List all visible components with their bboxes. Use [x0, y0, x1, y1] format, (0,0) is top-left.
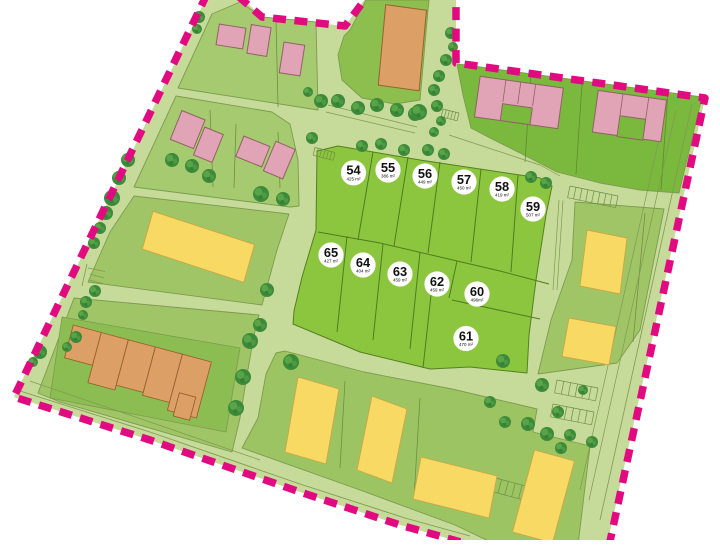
svg-text:450 m²: 450 m² — [457, 186, 472, 191]
svg-text:427 m²: 427 m² — [324, 259, 339, 264]
svg-text:60: 60 — [470, 284, 484, 299]
svg-text:57: 57 — [457, 172, 471, 187]
svg-text:61: 61 — [459, 328, 473, 343]
svg-text:425 m²: 425 m² — [346, 176, 361, 181]
svg-text:507 m²: 507 m² — [526, 213, 541, 218]
svg-text:419 m²: 419 m² — [495, 193, 510, 198]
svg-text:496m²: 496m² — [471, 298, 484, 303]
svg-text:386 m²: 386 m² — [381, 174, 396, 179]
svg-text:459 m²: 459 m² — [430, 288, 445, 293]
svg-text:56: 56 — [418, 166, 432, 181]
svg-text:59: 59 — [526, 199, 540, 214]
svg-text:470 m²: 470 m² — [459, 342, 474, 347]
svg-text:58: 58 — [495, 179, 509, 194]
svg-text:404 m²: 404 m² — [356, 269, 371, 274]
svg-text:62: 62 — [430, 274, 444, 289]
svg-text:55: 55 — [381, 160, 395, 175]
svg-text:459 m²: 459 m² — [393, 278, 408, 283]
svg-text:65: 65 — [324, 245, 338, 260]
svg-text:63: 63 — [393, 264, 407, 279]
svg-text:64: 64 — [356, 255, 371, 270]
svg-text:449 m²: 449 m² — [418, 180, 433, 185]
svg-text:54: 54 — [346, 163, 361, 178]
